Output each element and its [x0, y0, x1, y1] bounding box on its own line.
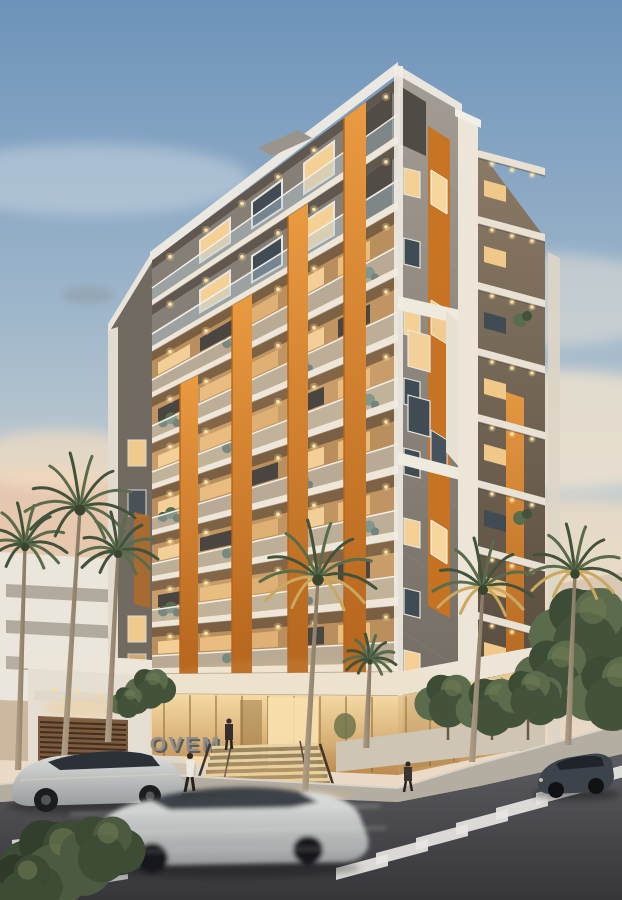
- rendering-canvas: NOVEM NOVEM: [0, 0, 622, 900]
- scene-svg: NOVEM NOVEM: [0, 0, 622, 900]
